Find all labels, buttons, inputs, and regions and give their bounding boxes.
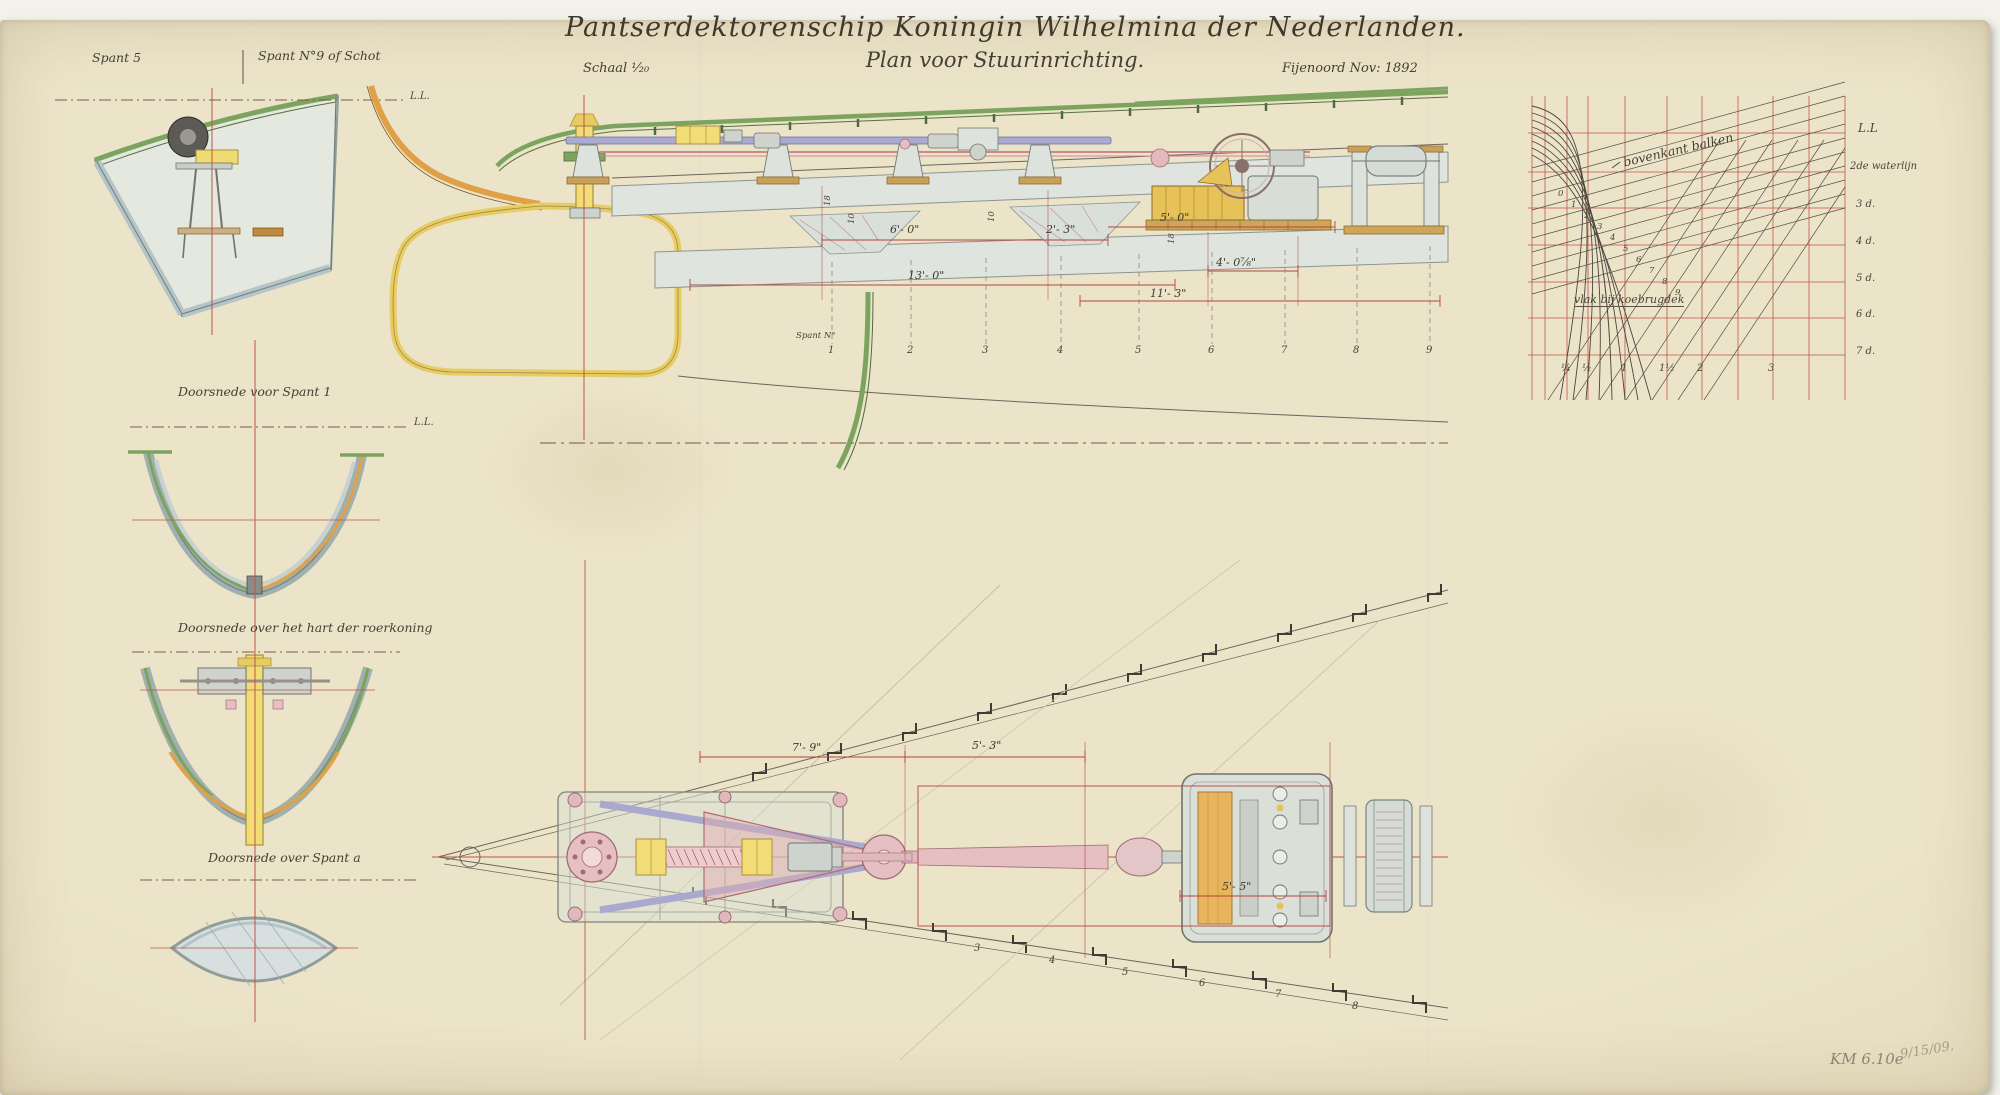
plan-frame-number: 4	[1049, 956, 1055, 966]
curves-waterline-label: 6 d.	[1856, 310, 1875, 320]
dim-5-5: 5'- 5"	[1222, 881, 1251, 892]
curves-waterline-label: 3 d.	[1856, 200, 1875, 210]
curves-waterline-label: L.L	[1858, 122, 1878, 134]
frame-number: 6	[1208, 346, 1214, 356]
curves-waterline-label: 4 d.	[1856, 237, 1875, 247]
dim-10-a: 10	[848, 213, 857, 224]
section-spant5-spant9	[55, 50, 406, 335]
curves-diagram	[1528, 82, 1845, 400]
capstan-elevation	[1344, 146, 1444, 234]
plan-frame-number: 5	[1122, 968, 1128, 978]
curves-x-label: 1	[1621, 364, 1627, 374]
pencil-archive-mark: KM 6.10e	[1830, 1052, 1904, 1067]
frame-number: 4	[1057, 346, 1063, 356]
dim-18-a: 18	[824, 195, 833, 206]
waterline-label-2: L.L.	[414, 418, 434, 428]
steering-engine-plan	[1182, 774, 1332, 942]
dim-10-b: 10	[988, 211, 997, 222]
dim-5-3: 5'- 3"	[972, 740, 1001, 751]
curve-number: 1	[1571, 201, 1576, 210]
curves-x-label: ½	[1582, 364, 1592, 374]
dim-7-9: 7'- 9"	[792, 742, 821, 753]
dim-5-0: 5'- 0"	[1160, 212, 1189, 223]
dim-6-0: 6'- 0"	[890, 224, 919, 235]
label-koebrugdek: vlak bij koebrugdek	[1574, 294, 1684, 307]
curve-number: 8	[1662, 278, 1667, 287]
caption-spant1: Doorsnede voor Spant 1	[178, 386, 331, 399]
plan-frame-number: 7	[1275, 990, 1281, 1000]
curve-number: 4	[1610, 234, 1615, 243]
curve-number: 2	[1584, 212, 1589, 221]
frame-number: 2	[907, 346, 913, 356]
drawing-sheet: Pantserdektorenschip Koningin Wilhelmina…	[0, 0, 2000, 1095]
frame-number: 1	[828, 346, 834, 356]
curves-x-label: ¼	[1561, 364, 1571, 374]
curves-x-label: 2	[1697, 364, 1703, 374]
dim-13-0: 13'- 0"	[908, 270, 944, 281]
label-spant-9: Spant N°9 of Schot	[258, 50, 380, 63]
frame-number: 5	[1135, 346, 1141, 356]
scale-label: Schaal ¹⁄₂₀	[583, 62, 649, 75]
sheet-subtitle: Plan voor Stuurinrichting.	[700, 50, 1310, 71]
waterline-label-1: L.L.	[410, 92, 430, 102]
frame-curves	[1532, 106, 1651, 400]
frame-number: 3	[982, 346, 988, 356]
section-spant1	[128, 427, 410, 594]
caption-spant-a: Doorsnede over Spant a	[208, 852, 361, 865]
frame-number: 9	[1426, 346, 1432, 356]
dim-2-3: 2'- 3"	[1046, 224, 1075, 235]
caption-roerkoning: Doorsnede over het hart der roerkoning	[178, 622, 433, 635]
frame-axis-label: Spant N°	[796, 332, 836, 341]
sheet-linework	[0, 0, 2000, 1095]
curve-number: 3	[1597, 223, 1602, 232]
section-roerkoning	[132, 652, 400, 845]
plan-frame-number: 8	[1352, 1002, 1358, 1012]
curves-waterline-label: 7 d.	[1856, 347, 1875, 357]
frame-number: 7	[1281, 346, 1287, 356]
label-spant-5: Spant 5	[92, 52, 141, 65]
curve-number: 6	[1636, 256, 1641, 265]
curves-waterline-label: 2de waterlijn	[1850, 162, 1917, 172]
plan-frame-number: 3	[974, 944, 980, 954]
curve-number: 0	[1558, 190, 1563, 199]
sheet-title: Pantserdektorenschip Koningin Wilhelmina…	[565, 14, 1445, 41]
dim-11-3: 11'- 3"	[1150, 288, 1186, 299]
curve-number: 5	[1623, 245, 1628, 254]
capstan-plan	[1344, 800, 1432, 912]
plan-frame-number: 6	[1199, 979, 1205, 989]
dim-18-b: 18	[1168, 233, 1177, 244]
curve-number: 7	[1649, 267, 1654, 276]
yard-date-label: Fijenoord Nov: 1892	[1282, 62, 1418, 75]
curves-x-label: 3	[1768, 364, 1774, 374]
plan-view	[432, 560, 1448, 1060]
deck-beam-ticks	[655, 97, 1402, 135]
frame-number: 8	[1353, 346, 1359, 356]
dim-4-078: 4'- 0⅞"	[1216, 257, 1256, 268]
curves-x-label: 1½	[1659, 364, 1675, 374]
curves-waterline-label: 5 d.	[1856, 274, 1875, 284]
